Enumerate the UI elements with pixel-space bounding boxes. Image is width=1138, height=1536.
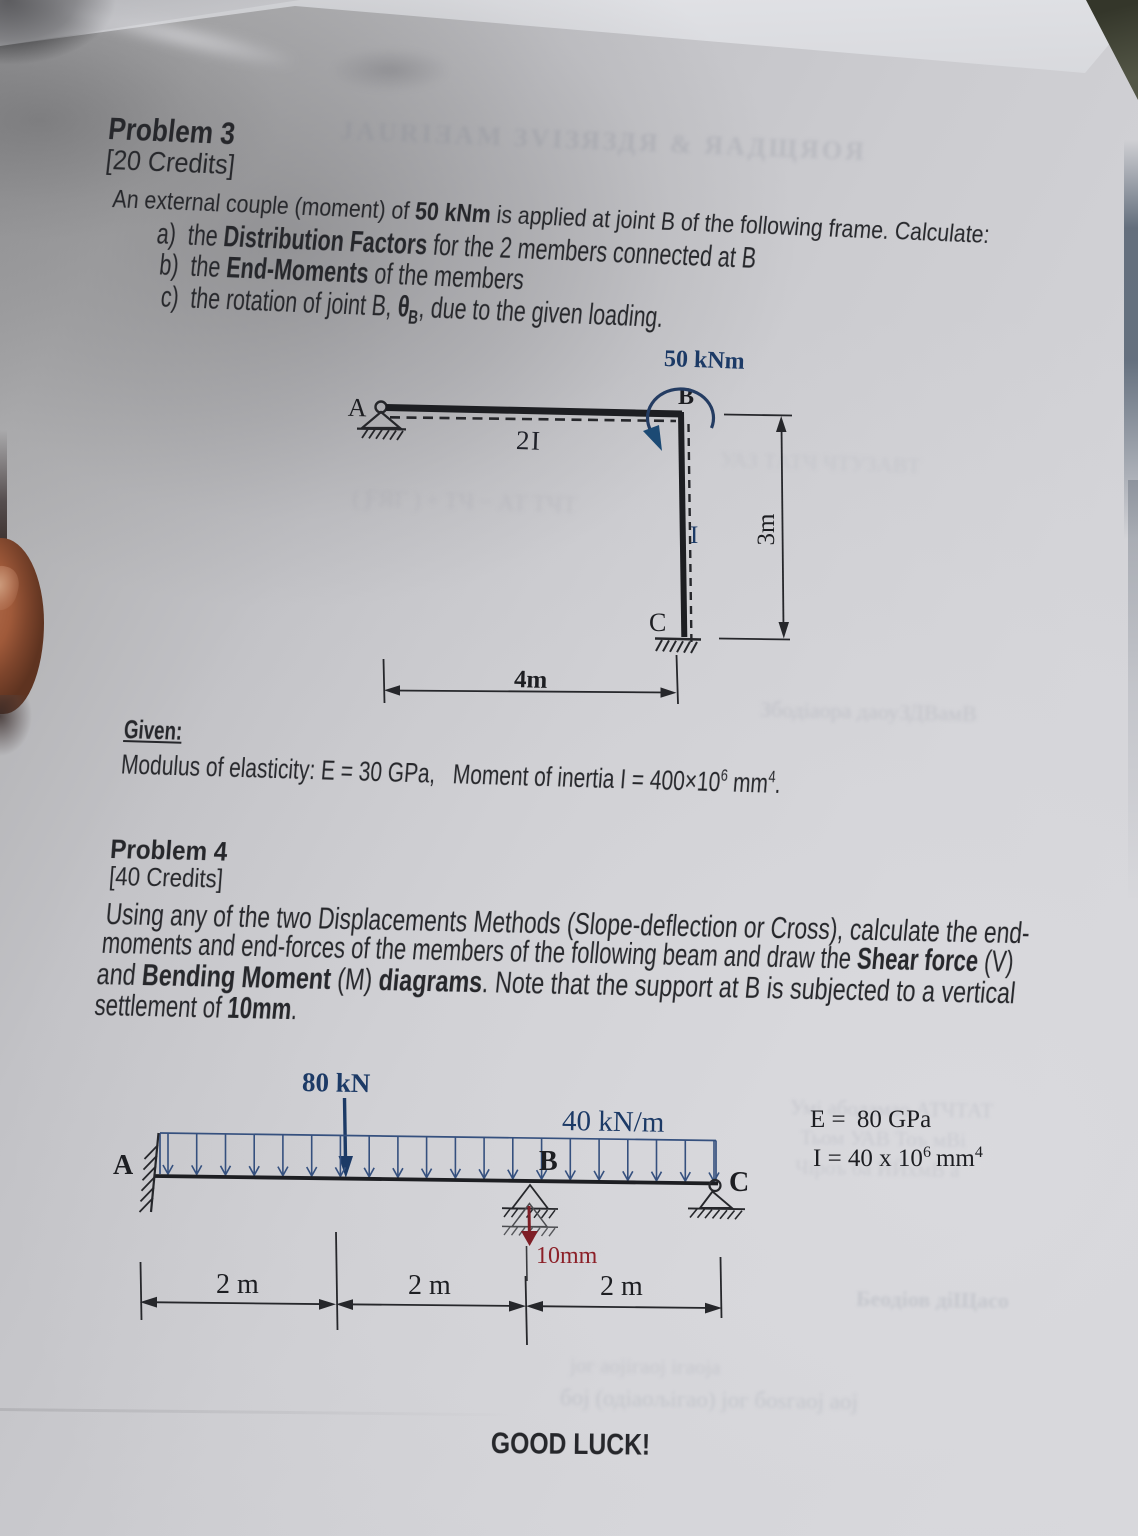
svg-text:2I: 2I bbox=[516, 425, 543, 456]
svg-text:A: A bbox=[113, 1150, 134, 1181]
svg-text:4m: 4m bbox=[514, 666, 548, 694]
svg-text:B: B bbox=[539, 1146, 558, 1177]
svg-text:C: C bbox=[649, 608, 666, 637]
svg-text:2 m: 2 m bbox=[408, 1270, 451, 1301]
svg-text:A: A bbox=[347, 393, 367, 423]
svg-text:C: C bbox=[729, 1167, 749, 1198]
svg-text:50 kNm: 50 kNm bbox=[664, 346, 746, 375]
svg-text:I = 40 x 106 mm4: I = 40 x 106 mm4 bbox=[813, 1144, 983, 1172]
svg-text:2 m: 2 m bbox=[600, 1271, 643, 1302]
svg-text:3m: 3m bbox=[753, 513, 780, 546]
svg-text:10mm: 10mm bbox=[536, 1243, 598, 1269]
svg-text:2 m: 2 m bbox=[216, 1269, 259, 1300]
svg-text:40 kN/m: 40 kN/m bbox=[562, 1105, 665, 1139]
svg-text:I: I bbox=[690, 522, 698, 549]
svg-text:E = 80 GPa: E = 80 GPa bbox=[810, 1106, 931, 1133]
svg-text:80 kN: 80 kN bbox=[302, 1067, 371, 1098]
